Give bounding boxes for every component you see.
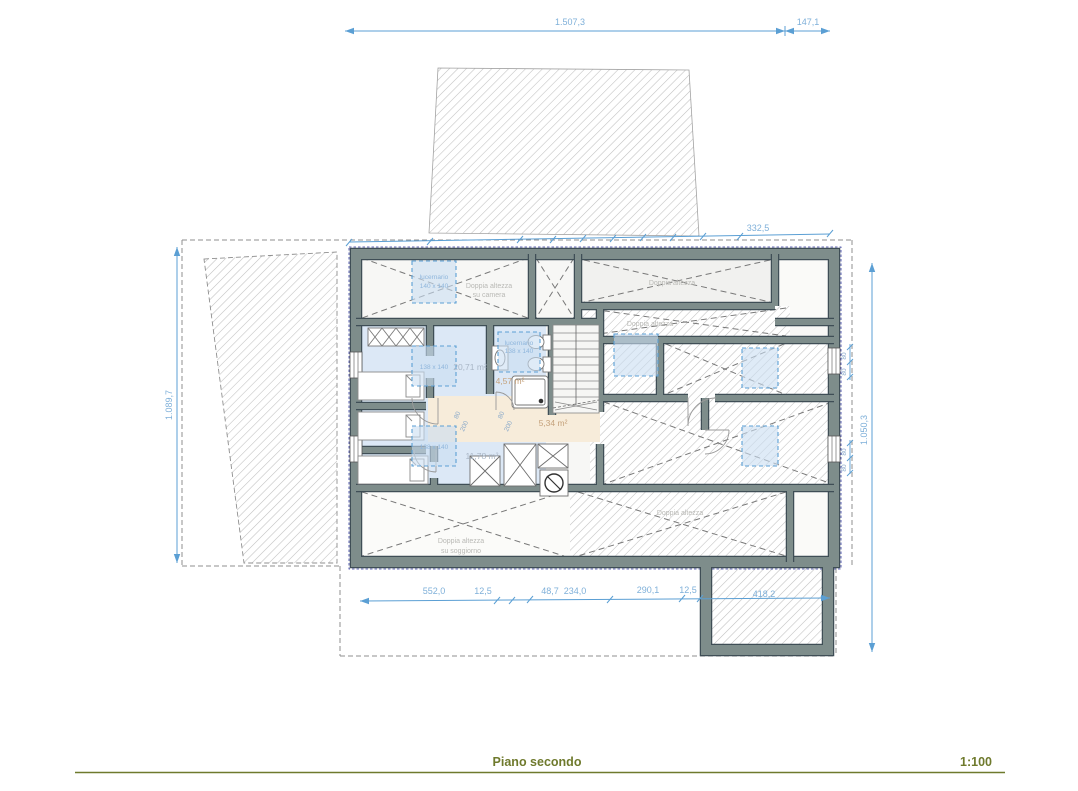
window-right-2: [828, 436, 840, 462]
double-height-strip-label: Doppia altezza: [627, 321, 673, 328]
area-hallway: 5,34 m²: [539, 418, 568, 428]
double-height-camera-label2: su camera: [473, 292, 506, 299]
dim-bottom-5: 290,1: [637, 585, 660, 595]
double-height-bottom-right-label: Doppia altezza: [657, 510, 703, 517]
area-bedroom-large: 20,71 m²: [453, 362, 487, 372]
dim-bottom-3: 48,7: [541, 586, 559, 596]
site-hatch-left: [204, 252, 337, 563]
skylight-bath-label: lucernario: [505, 340, 534, 347]
dim-right-small-1: 80: [841, 352, 848, 360]
skylight-camera-size: 140 x 140: [420, 283, 449, 290]
skylight-bath-size: 138 x 140: [505, 348, 534, 355]
dim-bottom-1: 552,0: [423, 586, 446, 596]
double-height-living-label2: su soggiorno: [441, 548, 481, 555]
floor-plan-svg: lucernario 140 x 140 Doppia altezza su c…: [0, 0, 1078, 791]
stairs: [553, 325, 599, 413]
dim-bottom-2: 12,5: [474, 586, 492, 596]
double-height-camera-label: Doppia altezza: [466, 283, 512, 290]
skylight-box-right-3: [742, 426, 778, 466]
roof-hatch-top: [429, 68, 699, 236]
dimension-top: 1.507,3 147,1: [345, 17, 830, 36]
skylight-box-camera: [412, 261, 456, 303]
dim-top-main: 1.507,3: [555, 17, 585, 27]
double-height-right-label: Doppia altezza: [649, 280, 695, 287]
dimension-right: 1.050,3: [859, 263, 875, 652]
footer-scale: 1:100: [960, 755, 992, 769]
dim-left-total: 1.089,7: [164, 390, 174, 420]
area-bathroom: 4,57 m²: [496, 376, 525, 386]
skylight-box-right-2: [742, 348, 778, 388]
dim-upper-chain-label: 332,5: [747, 223, 770, 233]
footer: Piano secondo 1:100: [75, 755, 1005, 773]
wardrobe: [368, 328, 424, 346]
dim-right-small-3: 80: [841, 448, 848, 456]
dim-top-right: 147,1: [797, 17, 820, 27]
floor-plan-page: lucernario 140 x 140 Doppia altezza su c…: [0, 0, 1078, 791]
dimension-left: 1.089,7: [164, 247, 180, 563]
window-right-1: [828, 348, 840, 374]
boiler: [540, 470, 568, 496]
dim-right-small-4: 80: [841, 464, 848, 472]
dim-right-total: 1.050,3: [859, 415, 869, 445]
skylight-box-right-1: [614, 334, 658, 376]
dim-bottom-7: 418,2: [753, 589, 776, 599]
skylight-left-bottom-size: 138 x 140: [420, 444, 449, 451]
dim-bottom-4: 234,0: [564, 586, 587, 596]
skylight-left-top-size: 138 x 140: [420, 364, 449, 371]
dimension-right-small: 80 80 80 80: [841, 344, 853, 476]
area-bedroom-small: 11,78 m²: [466, 451, 499, 461]
skylight-camera-label: lucernario: [420, 274, 449, 281]
double-height-living-label: Doppia altezza: [438, 538, 484, 545]
footer-title: Piano secondo: [493, 755, 582, 769]
dim-right-small-2: 80: [841, 368, 848, 376]
dim-bottom-6: 12,5: [679, 585, 697, 595]
